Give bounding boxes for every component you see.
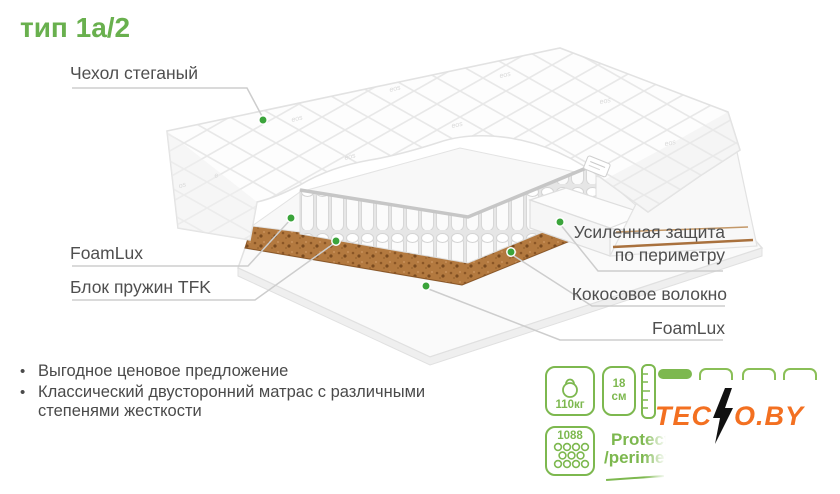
protect-line2: /perimeter [604, 448, 668, 468]
brand-logo: TEC O.BY [655, 388, 840, 444]
anchor-dot-foamlux-left [287, 214, 295, 222]
bullet-text: Выгодное ценовое предложение [38, 362, 500, 382]
bullet-list: • Выгодное ценовое предложение • Классич… [20, 362, 500, 423]
height-badge: 18 см [602, 366, 636, 416]
brand-suffix: O.BY [734, 401, 804, 432]
firmness-pill [742, 368, 776, 380]
callout-foamlux-right: FoamLux [652, 318, 725, 339]
infographic-canvas: eos eos eos eos eos eos eos eos [0, 0, 840, 494]
springs-dots-icon [547, 442, 593, 472]
callout-cover: Чехол стеганый [70, 63, 198, 84]
bullet-glyph: • [20, 383, 38, 403]
anchor-dot-perimeter [556, 218, 564, 226]
ruler-icon [641, 364, 656, 424]
callout-foamlux-left: FoamLux [70, 243, 143, 264]
callout-perimeter-line2: по периметру [615, 245, 725, 266]
springs-count-value: 1088 [557, 430, 583, 442]
firmness-pill-active [658, 369, 692, 379]
callout-coconut: Кокосовое волокно [572, 284, 727, 305]
bullet-glyph: • [20, 362, 38, 382]
max-weight-value: 110кг [555, 399, 584, 411]
page-title: тип 1а/2 [20, 12, 130, 44]
anchor-dot-cover [259, 116, 267, 124]
brand-prefix: TEC [655, 401, 712, 432]
anchor-dot-foamlux-right [422, 282, 430, 290]
leader-line-cover [72, 88, 263, 118]
kettlebell-icon [559, 375, 581, 399]
max-weight-badge: 110кг [545, 366, 595, 416]
list-item: • Классический двусторонний матрас с раз… [20, 383, 500, 422]
protect-underline [606, 475, 664, 481]
anchor-dot-springs [332, 237, 340, 245]
list-item: • Выгодное ценовое предложение [20, 362, 500, 382]
firmness-pill [699, 368, 733, 380]
callout-perimeter-line1: Усиленная защита [574, 222, 725, 243]
bullet-text: Классический двусторонний матрас с разли… [38, 383, 500, 422]
firmness-pill [783, 368, 817, 380]
springs-count-badge: 1088 [545, 426, 595, 476]
callout-springs: Блок пружин TFK [70, 277, 211, 298]
height-value: 18 [613, 378, 626, 391]
anchor-dot-coconut [507, 248, 515, 256]
lightning-bolt-icon [711, 388, 735, 444]
height-unit: см [612, 391, 627, 404]
